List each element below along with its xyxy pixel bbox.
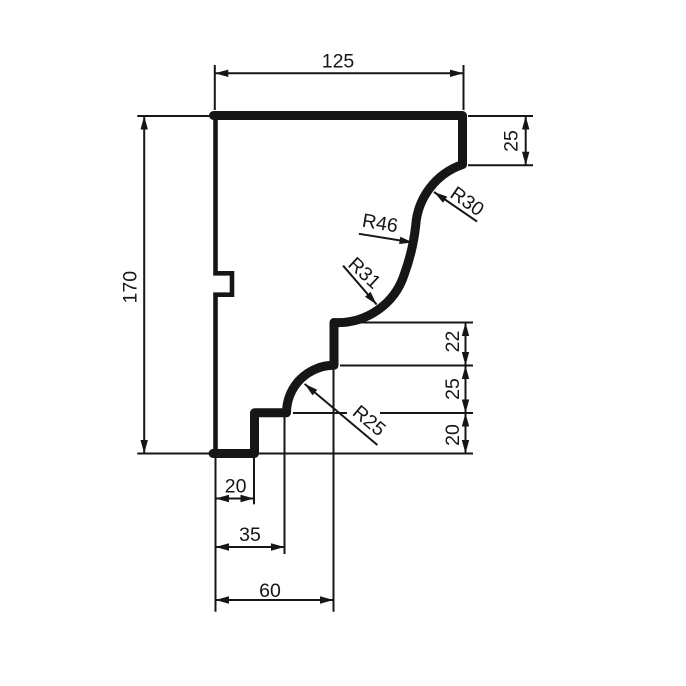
svg-text:R31: R31 <box>344 253 385 293</box>
svg-text:R46: R46 <box>361 210 400 238</box>
svg-text:20: 20 <box>442 424 464 446</box>
svg-text:25: 25 <box>442 378 464 400</box>
svg-text:20: 20 <box>225 475 247 497</box>
svg-text:35: 35 <box>239 524 261 546</box>
svg-text:125: 125 <box>322 50 355 72</box>
svg-text:170: 170 <box>120 271 142 304</box>
svg-text:R25: R25 <box>348 401 390 441</box>
svg-text:25: 25 <box>500 130 522 152</box>
svg-text:60: 60 <box>259 580 281 602</box>
svg-text:22: 22 <box>442 331 464 353</box>
